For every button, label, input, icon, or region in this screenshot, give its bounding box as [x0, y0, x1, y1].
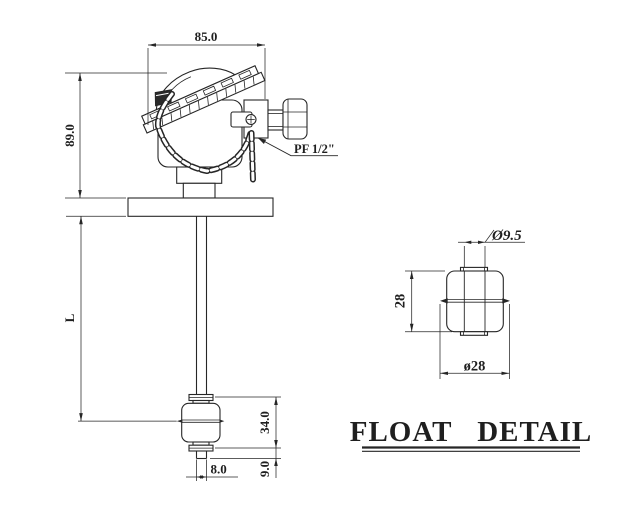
technical-drawing: 85.0 89.0 L 34.0 9.0 8.0 PF 1/2" Ø9.5 28… [0, 0, 619, 510]
float-stop-upper [189, 395, 213, 404]
dimension-L [66, 216, 177, 421]
float-main [177, 403, 225, 442]
clamp-screw [246, 115, 256, 125]
detail-label-28: 28 [393, 294, 409, 309]
dim-label-L: L [62, 313, 77, 322]
thread-nipple [268, 110, 283, 130]
detail-collar-bottom [461, 332, 488, 336]
end-plug [197, 451, 207, 459]
float-seam-left-tip [177, 420, 183, 423]
stem-tube [197, 216, 207, 394]
neck-lower [183, 183, 215, 198]
float-seam-right-tip [220, 420, 225, 423]
float-detail-body [440, 267, 510, 335]
detail-title: FLOAT DETAIL [350, 416, 593, 448]
dim-label-85: 85.0 [195, 29, 218, 44]
float-stop-lower [189, 442, 213, 451]
detail-seam-left-tip [440, 298, 448, 303]
hex-nut [283, 99, 307, 139]
dim-label-34: 34.0 [257, 411, 272, 434]
dim-label-89: 89.0 [62, 124, 77, 147]
dimension-89 [65, 73, 167, 198]
detail-collar-top [461, 267, 488, 271]
dim-label-8: 8.0 [211, 462, 227, 477]
detail-seam-right-tip [502, 298, 510, 303]
dim-label-9: 9.0 [257, 461, 272, 477]
detail-label-hole-dia: Ø9.5 [491, 228, 522, 244]
detail-label-outer-dia: ø28 [464, 359, 486, 375]
thread-label: PF 1/2" [294, 142, 335, 156]
mounting-flange [128, 198, 273, 216]
drawing-sheet: 85.0 89.0 L 34.0 9.0 8.0 PF 1/2" Ø9.5 28… [0, 0, 619, 510]
detail-title-underline [362, 448, 580, 452]
